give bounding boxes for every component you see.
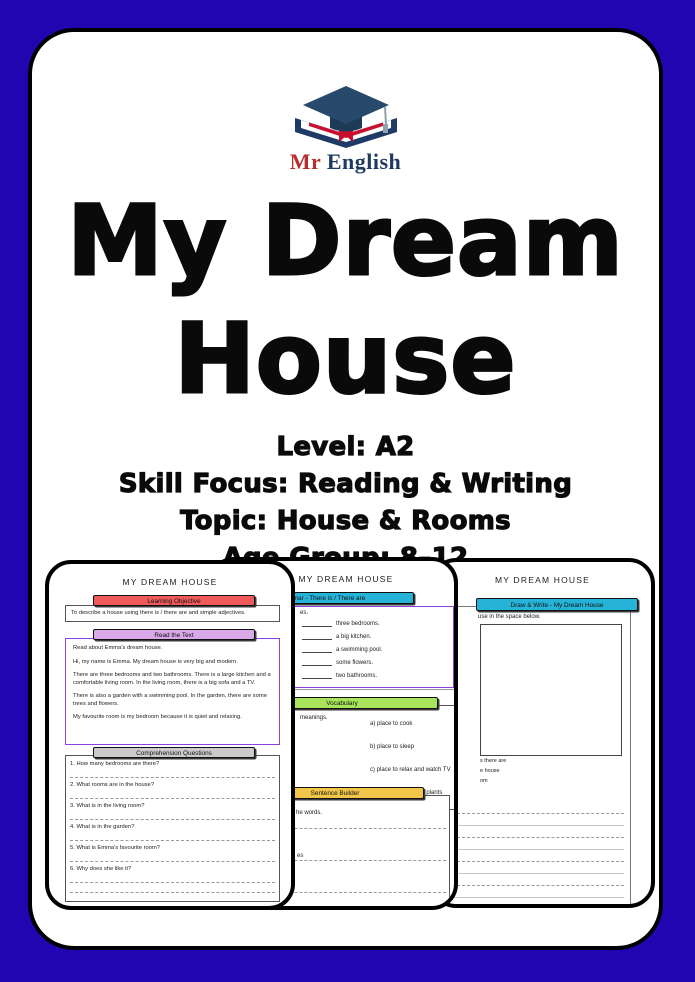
reading-paragraph: Hi, my name is Emma. My dream house is v… bbox=[73, 659, 272, 667]
writing-line bbox=[452, 837, 624, 838]
grammar-blank-row: three bedrooms. bbox=[302, 620, 380, 627]
answer-line bbox=[70, 883, 275, 893]
blank-label: two bathrooms. bbox=[336, 673, 377, 679]
question-row: 3. What is in the living room? bbox=[70, 799, 275, 820]
blank-label: a swimming pool. bbox=[336, 647, 382, 653]
comprehension-questions-box: 1. How many bedrooms are there? 2. What … bbox=[65, 755, 280, 902]
logo-graphic bbox=[287, 84, 405, 148]
grammar-blank-row: a big kitchen. bbox=[302, 633, 371, 640]
draw-write-intro-fragment: use in the space below. bbox=[478, 614, 540, 620]
worksheet-page-reading: MY DREAM HOUSE Learning Objective To des… bbox=[45, 560, 295, 910]
reading-paragraph: There is also a garden with a swimming p… bbox=[73, 693, 272, 708]
fill-in-blank bbox=[302, 620, 332, 627]
course-details: Level: A2 Skill Focus: Reading & Writing… bbox=[32, 429, 659, 577]
question-row: 2. What rooms are in the house? bbox=[70, 778, 275, 799]
brand-name: Mr English bbox=[32, 149, 659, 175]
vocabulary-option: c) place to relax and watch TV bbox=[370, 767, 451, 773]
worksheet-page-drawing: MY DREAM HOUSE Draw & Write - My Dream H… bbox=[430, 558, 655, 908]
fill-in-blank bbox=[302, 646, 332, 653]
fill-in-blank bbox=[302, 659, 332, 666]
writing-line bbox=[452, 813, 624, 814]
blank-label: a big kitchen. bbox=[336, 634, 371, 640]
vocabulary-option: b) place to sleep bbox=[370, 744, 414, 750]
vocabulary-intro-fragment: meanings. bbox=[300, 715, 328, 721]
grammar-intro-fragment: es. bbox=[300, 610, 308, 616]
sentence-builder-intro-fragment: he words. bbox=[296, 810, 322, 816]
comprehension-questions-banner: Comprehension Questions bbox=[93, 747, 255, 758]
brand-english: English bbox=[327, 149, 401, 174]
vocabulary-option: a) place to cook bbox=[370, 721, 412, 727]
fill-in-blank bbox=[302, 633, 332, 640]
title-line-2: House bbox=[32, 300, 659, 418]
title-line-1: My Dream bbox=[32, 182, 659, 300]
cover-page: Mr English My Dream House Level: A2 Skil… bbox=[0, 0, 695, 982]
page-header: MY DREAM HOUSE bbox=[434, 575, 651, 585]
brand-mr: Mr bbox=[290, 149, 321, 174]
writing-line bbox=[452, 885, 624, 886]
writing-line bbox=[452, 873, 624, 874]
writing-line bbox=[452, 825, 624, 826]
grammar-blank-row: two bathrooms. bbox=[302, 672, 377, 679]
checklist-fragment: s there are bbox=[480, 758, 506, 764]
detail-level: Level: A2 bbox=[32, 429, 659, 466]
reading-text-box: Read about Emma's dream house. Hi, my na… bbox=[65, 638, 280, 745]
checklist-fragment: om bbox=[480, 778, 488, 784]
mr-english-logo: Mr English bbox=[32, 84, 659, 175]
draw-write-banner: Draw & Write - My Dream House bbox=[476, 598, 638, 611]
question-row: 6. Why does she like it? bbox=[70, 862, 275, 883]
writing-line bbox=[452, 849, 624, 850]
sentence-fragment: es bbox=[297, 853, 303, 859]
grammar-blank-row: some flowers. bbox=[302, 659, 373, 666]
question-row: 5. What is Emma's favourite room? bbox=[70, 841, 275, 862]
question-row: 1. How many bedrooms are there? bbox=[70, 757, 275, 778]
writing-line bbox=[452, 861, 624, 862]
drawing-area bbox=[480, 624, 622, 756]
main-title: My Dream House bbox=[32, 182, 659, 418]
detail-topic: Topic: House & Rooms bbox=[32, 503, 659, 540]
blank-label: three bedrooms. bbox=[336, 621, 380, 627]
blank-label: some flowers. bbox=[336, 660, 373, 666]
learning-objective-banner: Learning Objective bbox=[93, 595, 255, 606]
page-header: MY DREAM HOUSE bbox=[49, 577, 291, 587]
detail-skill-focus: Skill Focus: Reading & Writing bbox=[32, 466, 659, 503]
checklist-fragment: e house bbox=[480, 768, 500, 774]
reading-paragraph: My favourite room is my bedroom because … bbox=[73, 714, 272, 722]
reading-paragraph: Read about Emma's dream house. bbox=[73, 645, 272, 653]
fill-in-blank bbox=[302, 672, 332, 679]
learning-objective-text: To describe a house using there is / the… bbox=[66, 606, 279, 618]
grammar-blank-row: a swimming pool. bbox=[302, 646, 382, 653]
writing-line bbox=[452, 897, 624, 898]
learning-objective-box: To describe a house using there is / the… bbox=[65, 605, 280, 622]
read-the-text-banner: Read the Text bbox=[93, 629, 255, 640]
question-row: 4. What is in the garden? bbox=[70, 820, 275, 841]
reading-paragraph: There are three bedrooms and two bathroo… bbox=[73, 672, 272, 687]
